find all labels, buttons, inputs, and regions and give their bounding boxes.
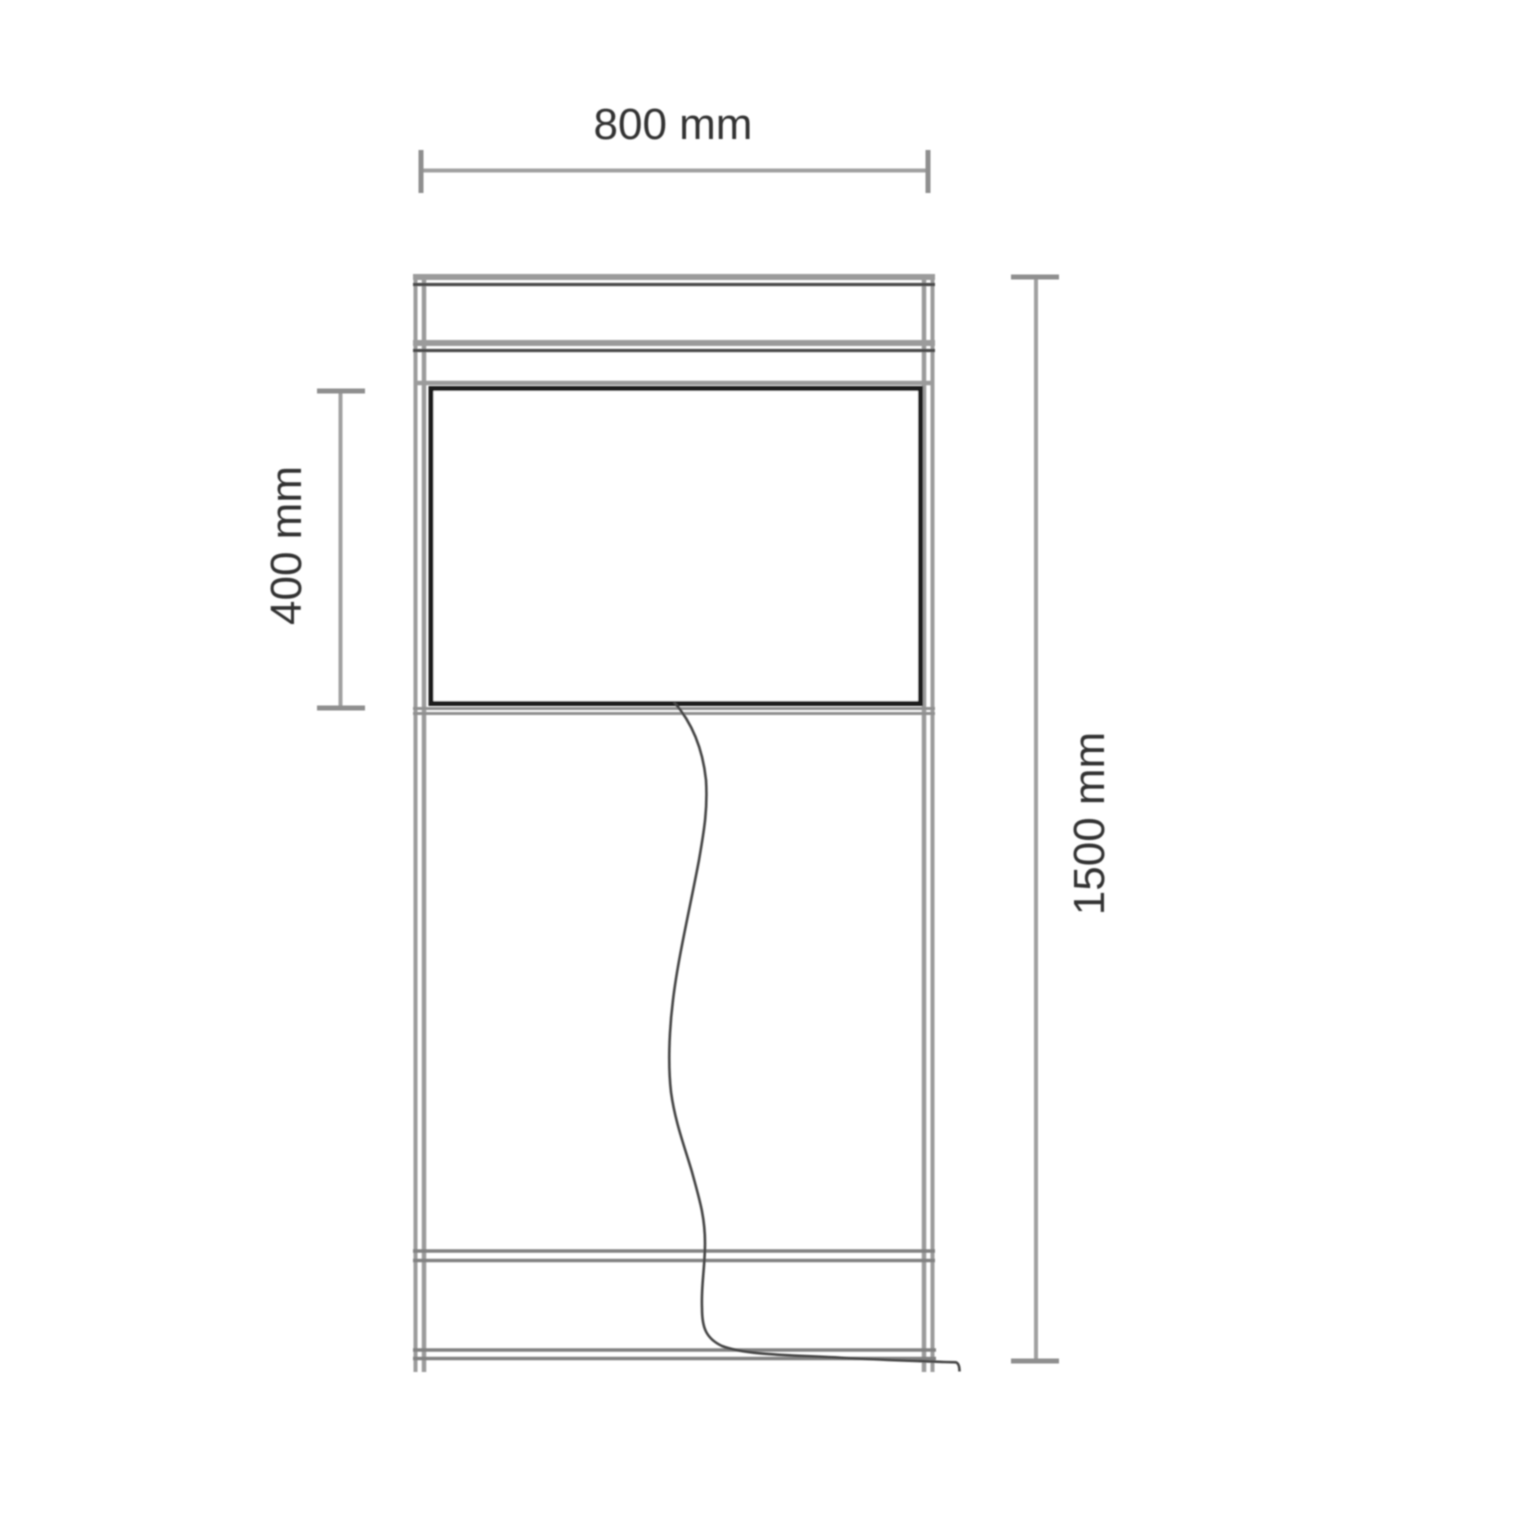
svg-text:400 mm: 400 mm <box>262 466 311 625</box>
svg-text:800 mm: 800 mm <box>594 100 753 149</box>
svg-text:1500 mm: 1500 mm <box>1065 732 1114 915</box>
